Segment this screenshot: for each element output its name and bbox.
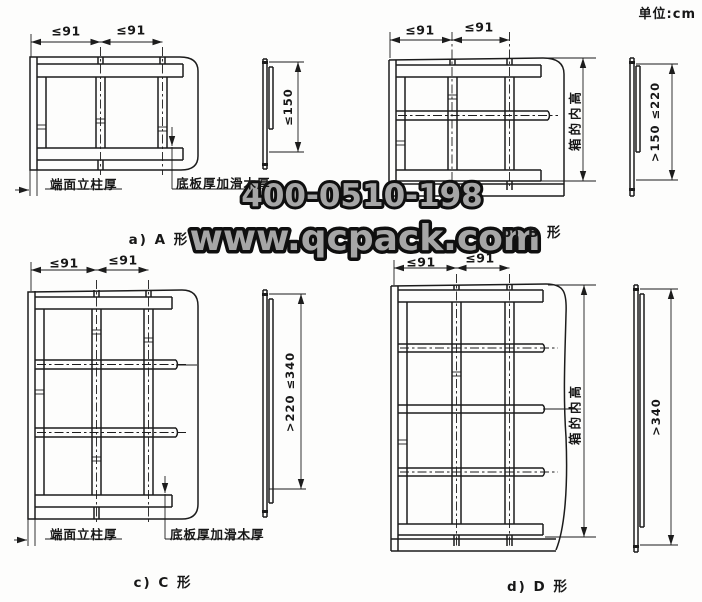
- d-dim-left-label: ≤91: [406, 255, 435, 270]
- a-front-view: [30, 47, 198, 175]
- a-dim-right-label: ≤91: [116, 23, 145, 38]
- b-inner-height-label: 箱的内高: [565, 89, 584, 151]
- a-dim-left-label: ≤91: [51, 24, 80, 39]
- unit-label: 单位:cm: [639, 3, 696, 22]
- c-side-dim-label: >220 ≤340: [283, 352, 297, 432]
- c-caption: c) C 形: [134, 571, 193, 591]
- c-dim-right-label: ≤91: [108, 253, 137, 268]
- d-dim-right-label: ≤91: [465, 251, 494, 266]
- a-caption: a) A 形: [129, 228, 190, 248]
- d-inner-height-label: 箱的内高: [565, 383, 584, 445]
- b-side-dim-label: >150 ≤220: [648, 82, 662, 162]
- b-caption: b) B 形: [501, 221, 562, 241]
- a-post-thickness-label: 端面立柱厚: [50, 174, 118, 193]
- watermark-phone: 400-0510-198: [241, 178, 482, 214]
- d-caption: d) D 形: [507, 575, 569, 595]
- a-bottom-thickness-label: 底板厚加滑木厚: [176, 173, 271, 192]
- d-side-dim-label: >340: [649, 398, 663, 436]
- c-post-thickness-label: 端面立柱厚: [50, 524, 118, 543]
- a-side-dim-label: ≤150: [281, 88, 295, 126]
- b-dim-right-label: ≤91: [464, 20, 493, 35]
- c-dim-left-label: ≤91: [49, 256, 78, 271]
- b-front-view: [389, 32, 564, 196]
- crate-panel-line-art: 400-0510-198 www.qcpack.com: [0, 0, 702, 602]
- c-bottom-thickness-label: 底板厚加滑木厚: [170, 524, 265, 543]
- technical-drawing-page: 400-0510-198 www.qcpack.com 单位:cm ≤91 ≤9…: [0, 0, 702, 602]
- c-front-view: [28, 280, 198, 524]
- b-dim-left-label: ≤91: [405, 23, 434, 38]
- d-front-view: [391, 274, 581, 551]
